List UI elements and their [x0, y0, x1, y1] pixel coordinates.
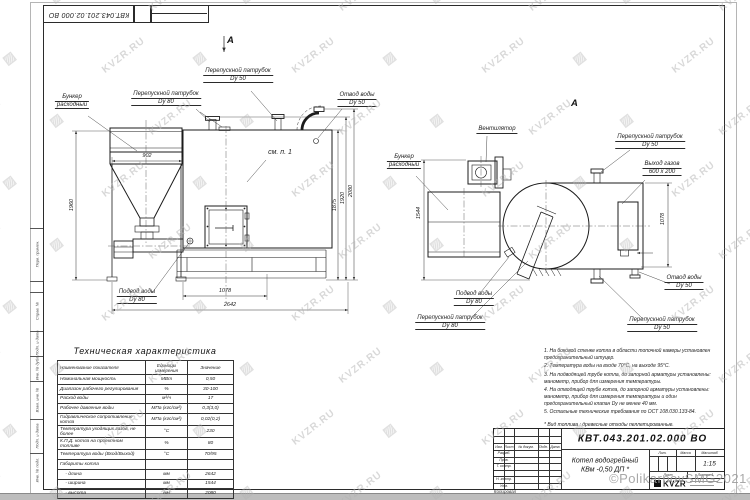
label-line: Вентилятор: [476, 126, 517, 134]
view-letter-a: А: [571, 98, 578, 109]
tech-table: Наименование показателя Единицы измерени…: [57, 360, 234, 499]
grid-line: [561, 449, 724, 450]
label-line: Подвод воды: [454, 291, 494, 299]
label-line: Перепускной патрубок: [615, 134, 685, 142]
drawing-sheet: КВТ.043.201.02.000 ВО Перв. примен. Спра…: [0, 0, 750, 500]
label-water-outlet-front: Отвод воды Dy 50: [337, 92, 376, 107]
param-value: 2642: [188, 469, 234, 479]
label-line: Перепускной патрубок: [627, 317, 697, 325]
grid-line: [649, 456, 724, 457]
param-name: Температура воды (Вход/Выход): [58, 450, 146, 460]
label-line: Dy 50: [337, 100, 376, 108]
label-line: Отвод воды: [664, 275, 703, 283]
label-line: Перепускной патрубок: [203, 68, 273, 76]
lit-label: Лит.: [658, 451, 666, 455]
note-1: 1. На боковой стенке котла в области топ…: [544, 348, 722, 362]
col-header-value: Значение: [188, 361, 234, 375]
param-value: 2080: [188, 489, 234, 499]
param-units: °С: [146, 450, 188, 460]
col-header-units: Единицы измерения: [146, 361, 188, 375]
col-list: Лист: [504, 445, 513, 449]
tech-table-header-row: Наименование показателя Единицы измерени…: [58, 361, 234, 375]
label-line: Бункер: [55, 94, 89, 102]
param-value: 0,02(0,2): [188, 414, 234, 426]
param-value: 80: [188, 438, 234, 450]
param-name: - ширина: [58, 479, 146, 489]
document-number: КВТ.043.201.02.000 ВО: [578, 434, 707, 445]
param-value: 1544: [188, 479, 234, 489]
scale-label: Масштаб: [701, 451, 717, 455]
row-nkontr: Н. контр.: [496, 477, 512, 481]
label-line: Dy 80: [415, 323, 485, 331]
label-water-outlet-top: Отвод воды Dy 50: [664, 275, 703, 290]
table-row: Рабочее давление водыМПа (кгс/см²)0,3(3,…: [58, 404, 234, 414]
label-line: Подвод воды: [117, 289, 157, 297]
param-name: Номинальная мощность: [58, 375, 146, 385]
grid-line: [649, 449, 650, 489]
param-name: К.П.Д. котла на проектном топливе: [58, 438, 146, 450]
col-izm: Изм.: [495, 445, 502, 449]
table-row: К.П.Д. котла на проектном топливе%80: [58, 438, 234, 450]
label-line: Выход газов: [643, 161, 682, 169]
table-row: Диапазон рабочего регулирования%30-100: [58, 384, 234, 394]
label-line: Dy 50: [627, 325, 697, 333]
param-units: МПа (кгс/см²): [146, 404, 188, 414]
grid-line: [494, 436, 561, 437]
table-row: - высотамм2080: [58, 489, 234, 499]
grid-line: [676, 449, 677, 471]
front-view-drawing: [107, 106, 332, 302]
param-name: - высота: [58, 489, 146, 499]
label-gas-outlet: Выход газов 600 х 200: [643, 161, 682, 176]
param-name: Расход воды: [58, 394, 146, 404]
label-line: 600 х 200: [643, 169, 682, 177]
table-row: - длинамм2642: [58, 469, 234, 479]
top-view-dimensions: [421, 160, 672, 280]
dim-1960: 1960: [69, 199, 75, 211]
product-name-line2: КВм -0,50 ДП *: [581, 467, 629, 474]
grid-line: [667, 456, 668, 471]
dim-902: 902: [142, 153, 151, 159]
dim-1544: 1544: [416, 207, 422, 219]
param-value: 30-100: [188, 384, 234, 394]
grid-line: [658, 456, 659, 471]
grid-line: [538, 429, 539, 489]
param-value: [188, 459, 234, 469]
copied-label: Копировал: [494, 489, 516, 494]
param-value: 70/95: [188, 450, 234, 460]
row-tkontr: Т. контр.: [496, 464, 511, 468]
title-block: КВТ.043.201.02.000 ВО Котел водогрейный …: [493, 428, 725, 490]
label-line: Отвод воды: [337, 92, 376, 100]
label-line: расходный: [55, 102, 89, 110]
row-prov: Пров.: [499, 458, 508, 462]
param-units: мм: [146, 479, 188, 489]
label-line: Dy 80: [454, 299, 494, 307]
dim-2080: 2080: [348, 185, 354, 197]
note-4: 4. На отводящей трубе котла, до запорной…: [544, 387, 722, 408]
dim-1875: 1875: [332, 199, 338, 211]
table-row: Расход водым³/ч17: [58, 394, 234, 404]
mass-label: Масса: [680, 451, 690, 455]
top-view-drawing: [428, 156, 653, 283]
param-value: 0,50: [188, 375, 234, 385]
grid-line: [549, 429, 550, 489]
dim-2642: 2642: [224, 302, 236, 308]
note-5: 5. Остальные технические требования по О…: [544, 409, 722, 416]
param-units: м³/ч: [146, 394, 188, 404]
row-utv: Утв.: [500, 484, 508, 488]
view-arrow-letter-front: А: [227, 35, 234, 46]
dim-1078-top: 1078: [660, 213, 666, 225]
param-name: - длина: [58, 469, 146, 479]
label-bypass-dy80-top: Перепускной патрубок Dy 80: [415, 315, 485, 330]
label-line: Бункер: [387, 154, 421, 162]
label-hopper-top: Бункер расходный: [387, 154, 421, 169]
label-fan: Вентилятор: [476, 126, 517, 134]
param-units: МПа (кгс/см²): [146, 414, 188, 426]
param-value: 17: [188, 394, 234, 404]
param-units: [146, 459, 188, 469]
param-name: Габариты котла: [58, 459, 146, 469]
col-podp: Подп.: [539, 445, 548, 449]
param-units: мм: [146, 469, 188, 479]
label-see-note: см. п. 1: [268, 149, 292, 156]
label-water-inlet-top: Подвод воды Dy 80: [454, 291, 494, 306]
param-name: Рабочее давление воды: [58, 404, 146, 414]
label-bypass-dy50-top: Перепускной патрубок Dy 50: [615, 134, 685, 149]
tech-table-title: Техническая характеристика: [73, 346, 216, 356]
scale-value: 1:15: [703, 460, 716, 467]
grid-line: [561, 429, 562, 489]
param-value: 0,3(3,0): [188, 404, 234, 414]
label-hopper-front: Бункер расходный: [55, 94, 89, 109]
dim-1078-front: 1078: [219, 288, 231, 294]
param-name: Гидравлическое сопротивление котла: [58, 414, 146, 426]
table-row: Гидравлическое сопротивление котлаМПа (к…: [58, 414, 234, 426]
note-2: 2. Температура воды на входе 70°С, на вы…: [544, 363, 722, 370]
table-row: Температура воды (Вход/Выход)°С70/95: [58, 450, 234, 460]
table-row: - ширинамм1544: [58, 479, 234, 489]
table-row: Габариты котла: [58, 459, 234, 469]
dim-1920: 1920: [340, 192, 346, 204]
param-units: %: [146, 438, 188, 450]
label-line: Перепускной патрубок: [131, 91, 201, 99]
table-row: Номинальная мощностьМВт0,50: [58, 375, 234, 385]
label-line: Dy 50: [664, 283, 703, 291]
sheets-label: Листов 1: [698, 473, 714, 477]
grid-line: [649, 478, 724, 479]
table-row: Температура уходящих газов, не более°С23…: [58, 426, 234, 438]
label-bypass-dy80-front: Перепускной патрубок Dy 80: [131, 91, 201, 106]
param-units: МВт: [146, 375, 188, 385]
label-line: Dy 80: [131, 99, 201, 107]
label-line: Dy 80: [117, 297, 157, 305]
grid-line: [494, 470, 561, 471]
param-units: мм: [146, 489, 188, 499]
grid-line: [514, 429, 515, 489]
param-value: 230: [188, 426, 234, 438]
col-header-name: Наименование показателя: [58, 361, 146, 375]
logo-detail-line: [690, 481, 718, 482]
label-line: расходный: [387, 162, 421, 170]
param-name: Диапазон рабочего регулирования: [58, 384, 146, 394]
label-water-inlet-front: Подвод воды Dy 80: [117, 289, 157, 304]
grid-line: [695, 449, 696, 471]
kvzr-logo-text: KVZR: [663, 479, 686, 488]
param-units: %: [146, 384, 188, 394]
label-line: Dy 50: [615, 142, 685, 150]
logo-detail-line: [690, 485, 714, 486]
col-data: Дата: [550, 445, 559, 449]
param-units: °С: [146, 426, 188, 438]
product-name-line1: Котел водогрейный: [572, 458, 639, 465]
note-3: 3. На подводящей трубе котла, до запорно…: [544, 372, 722, 386]
grid-line: [687, 471, 688, 478]
sheet-label: Лист: [663, 473, 672, 477]
kvzr-logo-icon: [654, 480, 661, 487]
label-bypass-dy50-bottom: Перепускной патрубок Dy 50: [627, 317, 697, 332]
label-bypass-dy50-front: Перепускной патрубок Dy 50: [203, 68, 273, 83]
label-line: Перепускной патрубок: [415, 315, 485, 323]
label-line: Dy 50: [203, 76, 273, 84]
param-name: Температура уходящих газов, не более: [58, 426, 146, 438]
col-docnum: № докум.: [518, 445, 533, 449]
technical-notes: 1. На боковой стенке котла в области топ…: [544, 348, 722, 430]
row-razrab: Разраб.: [498, 451, 511, 455]
